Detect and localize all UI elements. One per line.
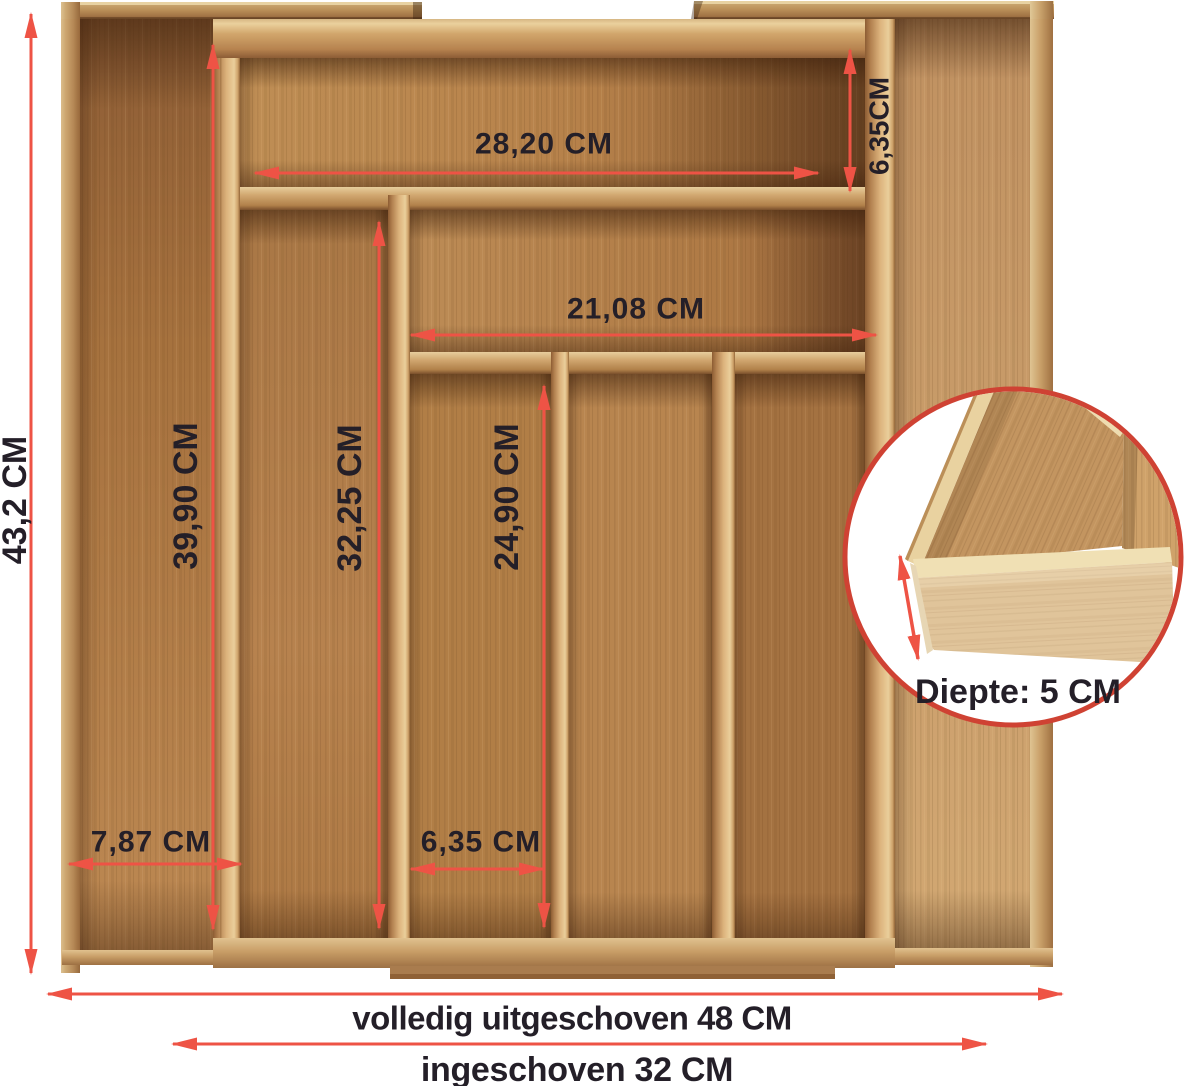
svg-text:43,2 CM: 43,2 CM — [0, 436, 34, 565]
svg-text:39,90 CM: 39,90 CM — [167, 422, 205, 569]
svg-text:ingeschoven 32 CM: ingeschoven 32 CM — [421, 1051, 733, 1086]
svg-text:21,08 CM: 21,08 CM — [567, 293, 705, 326]
svg-text:Diepte: 5 CM: Diepte: 5 CM — [915, 673, 1121, 711]
svg-text:24,90 CM: 24,90 CM — [488, 423, 526, 570]
svg-text:6,35CM: 6,35CM — [864, 77, 895, 175]
svg-text:volledig uitgeschoven 48 CM: volledig uitgeschoven 48 CM — [352, 1000, 791, 1037]
svg-text:7,87 CM: 7,87 CM — [91, 826, 211, 859]
svg-text:6,35 CM: 6,35 CM — [421, 826, 541, 859]
svg-text:28,20 CM: 28,20 CM — [475, 128, 613, 161]
svg-text:32,25 CM: 32,25 CM — [331, 424, 369, 571]
